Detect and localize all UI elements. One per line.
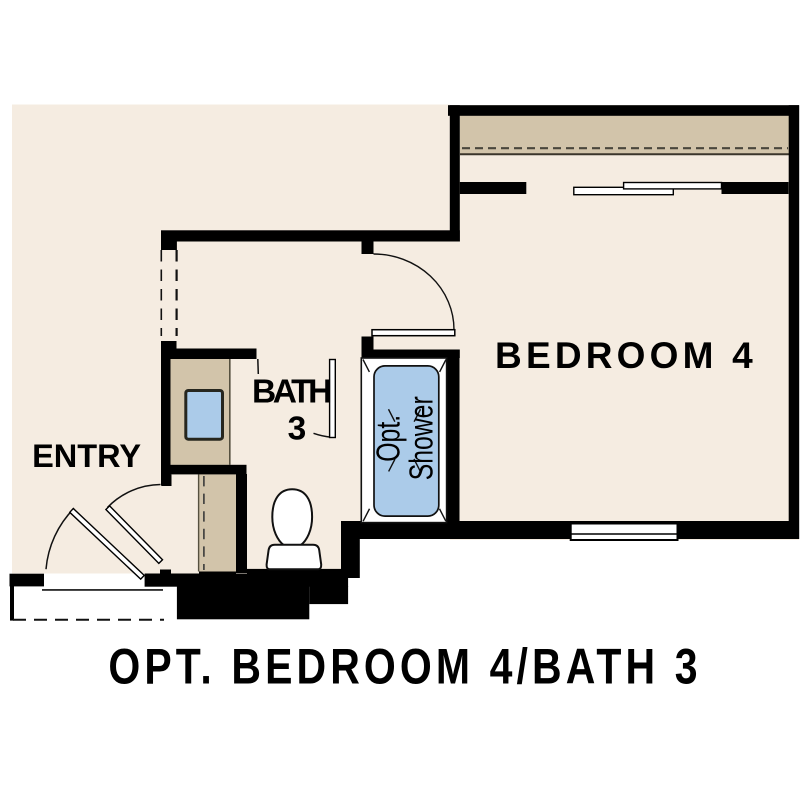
svg-text:ENTRY: ENTRY — [32, 438, 141, 474]
svg-text:BATH: BATH — [252, 373, 330, 410]
svg-text:Opt.: Opt. — [370, 415, 408, 462]
svg-text:OPT. BEDROOM 4/BATH 3: OPT. BEDROOM 4/BATH 3 — [108, 639, 701, 695]
svg-text:3: 3 — [288, 410, 307, 447]
svg-text:Shower: Shower — [403, 396, 441, 480]
svg-text:BEDROOM 4: BEDROOM 4 — [495, 335, 757, 376]
